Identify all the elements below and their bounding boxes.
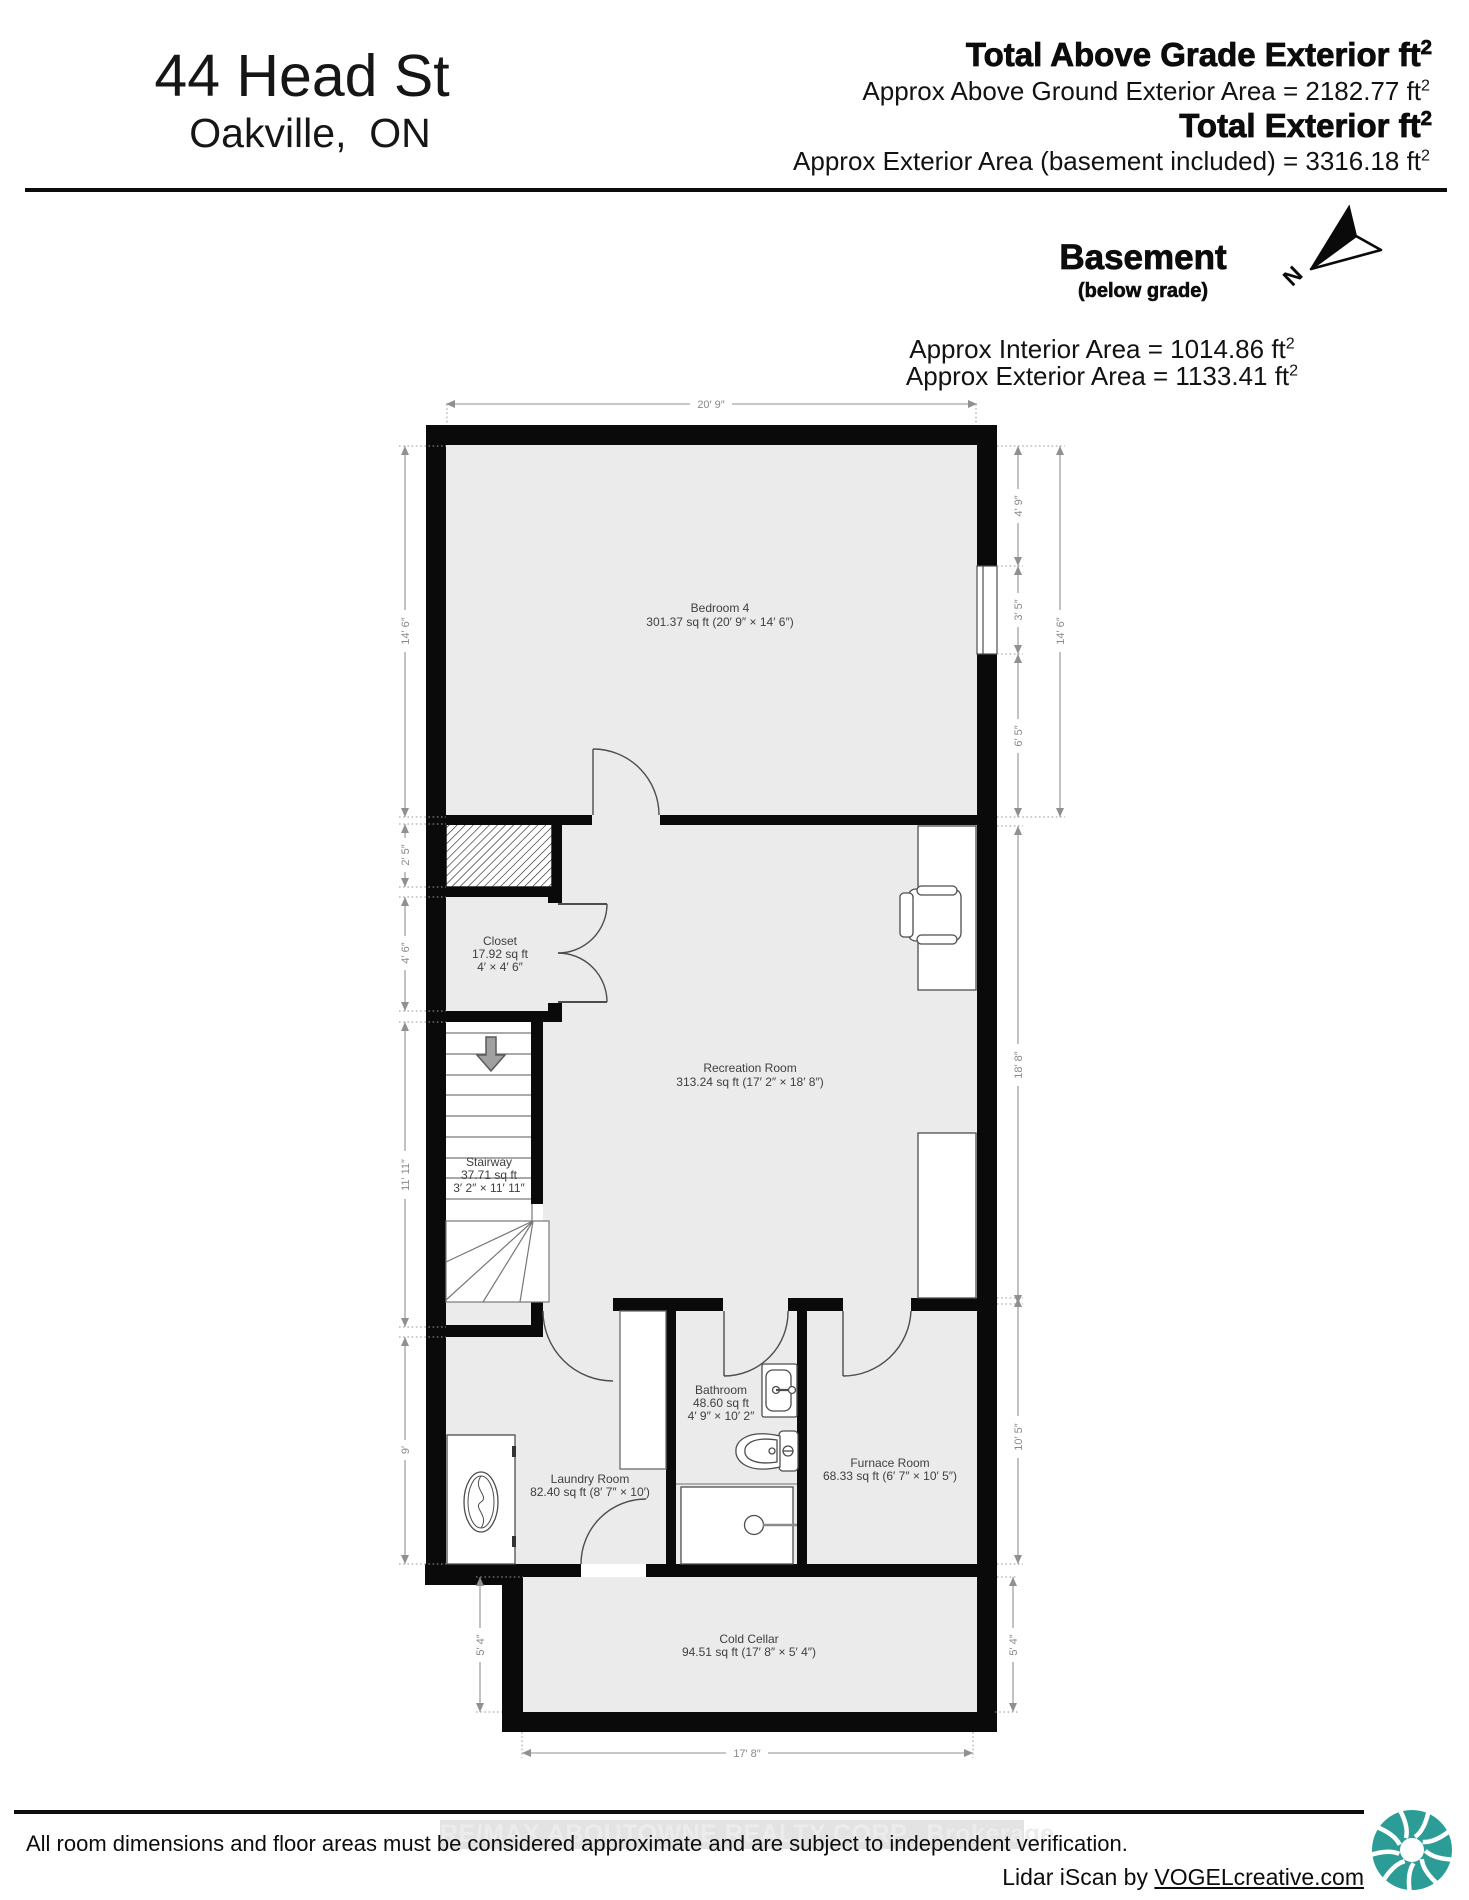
svg-text:4′ 9″: 4′ 9″ [1013,495,1025,516]
svg-text:Recreation Room: Recreation Room [703,1061,796,1075]
svg-text:37.71 sq ft: 37.71 sq ft [461,1168,518,1182]
svg-text:14′ 6″: 14′ 6″ [400,617,412,644]
svg-text:Bathroom: Bathroom [695,1383,747,1397]
svg-text:20′ 9″: 20′ 9″ [697,399,724,411]
svg-text:4′ 9″ × 10′ 2″: 4′ 9″ × 10′ 2″ [688,1409,755,1423]
svg-text:313.24 sq ft (17′ 2″ × 18′ 8″): 313.24 sq ft (17′ 2″ × 18′ 8″) [676,1075,823,1089]
svg-text:48.60 sq ft: 48.60 sq ft [693,1396,750,1410]
svg-text:301.37 sq ft (20′ 9″ × 14′ 6″): 301.37 sq ft (20′ 9″ × 14′ 6″) [646,615,793,629]
svg-text:68.33 sq ft (6′ 7″ × 10′ 5″): 68.33 sq ft (6′ 7″ × 10′ 5″) [823,1469,957,1483]
svg-text:9′: 9′ [400,1446,412,1454]
svg-text:3′ 2″ × 11′ 11″: 3′ 2″ × 11′ 11″ [453,1181,525,1195]
svg-text:94.51 sq ft (17′ 8″ × 5′ 4″): 94.51 sq ft (17′ 8″ × 5′ 4″) [682,1645,816,1659]
svg-text:5′ 4″: 5′ 4″ [475,1634,487,1655]
svg-text:17′ 8″: 17′ 8″ [733,1748,760,1760]
svg-text:3′ 5″: 3′ 5″ [1013,599,1025,620]
svg-text:Closet: Closet [483,934,518,948]
svg-text:17.92 sq ft: 17.92 sq ft [472,947,529,961]
svg-text:Cold Cellar: Cold Cellar [719,1632,778,1646]
svg-text:10′ 5″: 10′ 5″ [1013,1423,1025,1450]
svg-text:Laundry Room: Laundry Room [551,1472,630,1486]
svg-text:14′ 6″: 14′ 6″ [1055,617,1067,644]
svg-text:N: N [1278,261,1308,291]
svg-text:2′ 5″: 2′ 5″ [400,844,412,865]
svg-text:18′ 8″: 18′ 8″ [1013,1051,1025,1078]
svg-text:Furnace Room: Furnace Room [850,1456,929,1470]
svg-text:4′ × 4′ 6″: 4′ × 4′ 6″ [477,960,524,974]
svg-text:6′ 5″: 6′ 5″ [1013,725,1025,746]
svg-text:4′ 6″: 4′ 6″ [400,942,412,963]
svg-text:11′ 11″: 11′ 11″ [400,1159,412,1191]
svg-text:Stairway: Stairway [466,1155,512,1169]
svg-text:82.40 sq ft (8′ 7″ × 10′): 82.40 sq ft (8′ 7″ × 10′) [530,1485,650,1499]
svg-text:5′ 4″: 5′ 4″ [1008,1634,1020,1655]
svg-text:Bedroom 4: Bedroom 4 [691,601,750,615]
